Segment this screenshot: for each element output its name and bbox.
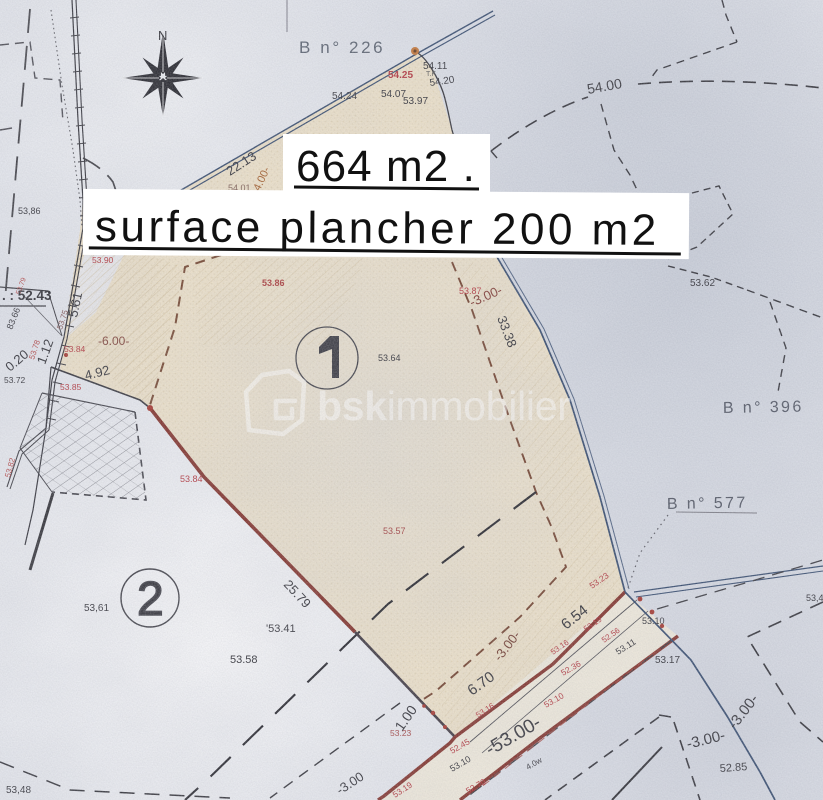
svg-text:surface plancher 200 m2: surface plancher 200 m2	[95, 202, 660, 255]
svg-text:664 m2 .: 664 m2 .	[296, 142, 476, 191]
